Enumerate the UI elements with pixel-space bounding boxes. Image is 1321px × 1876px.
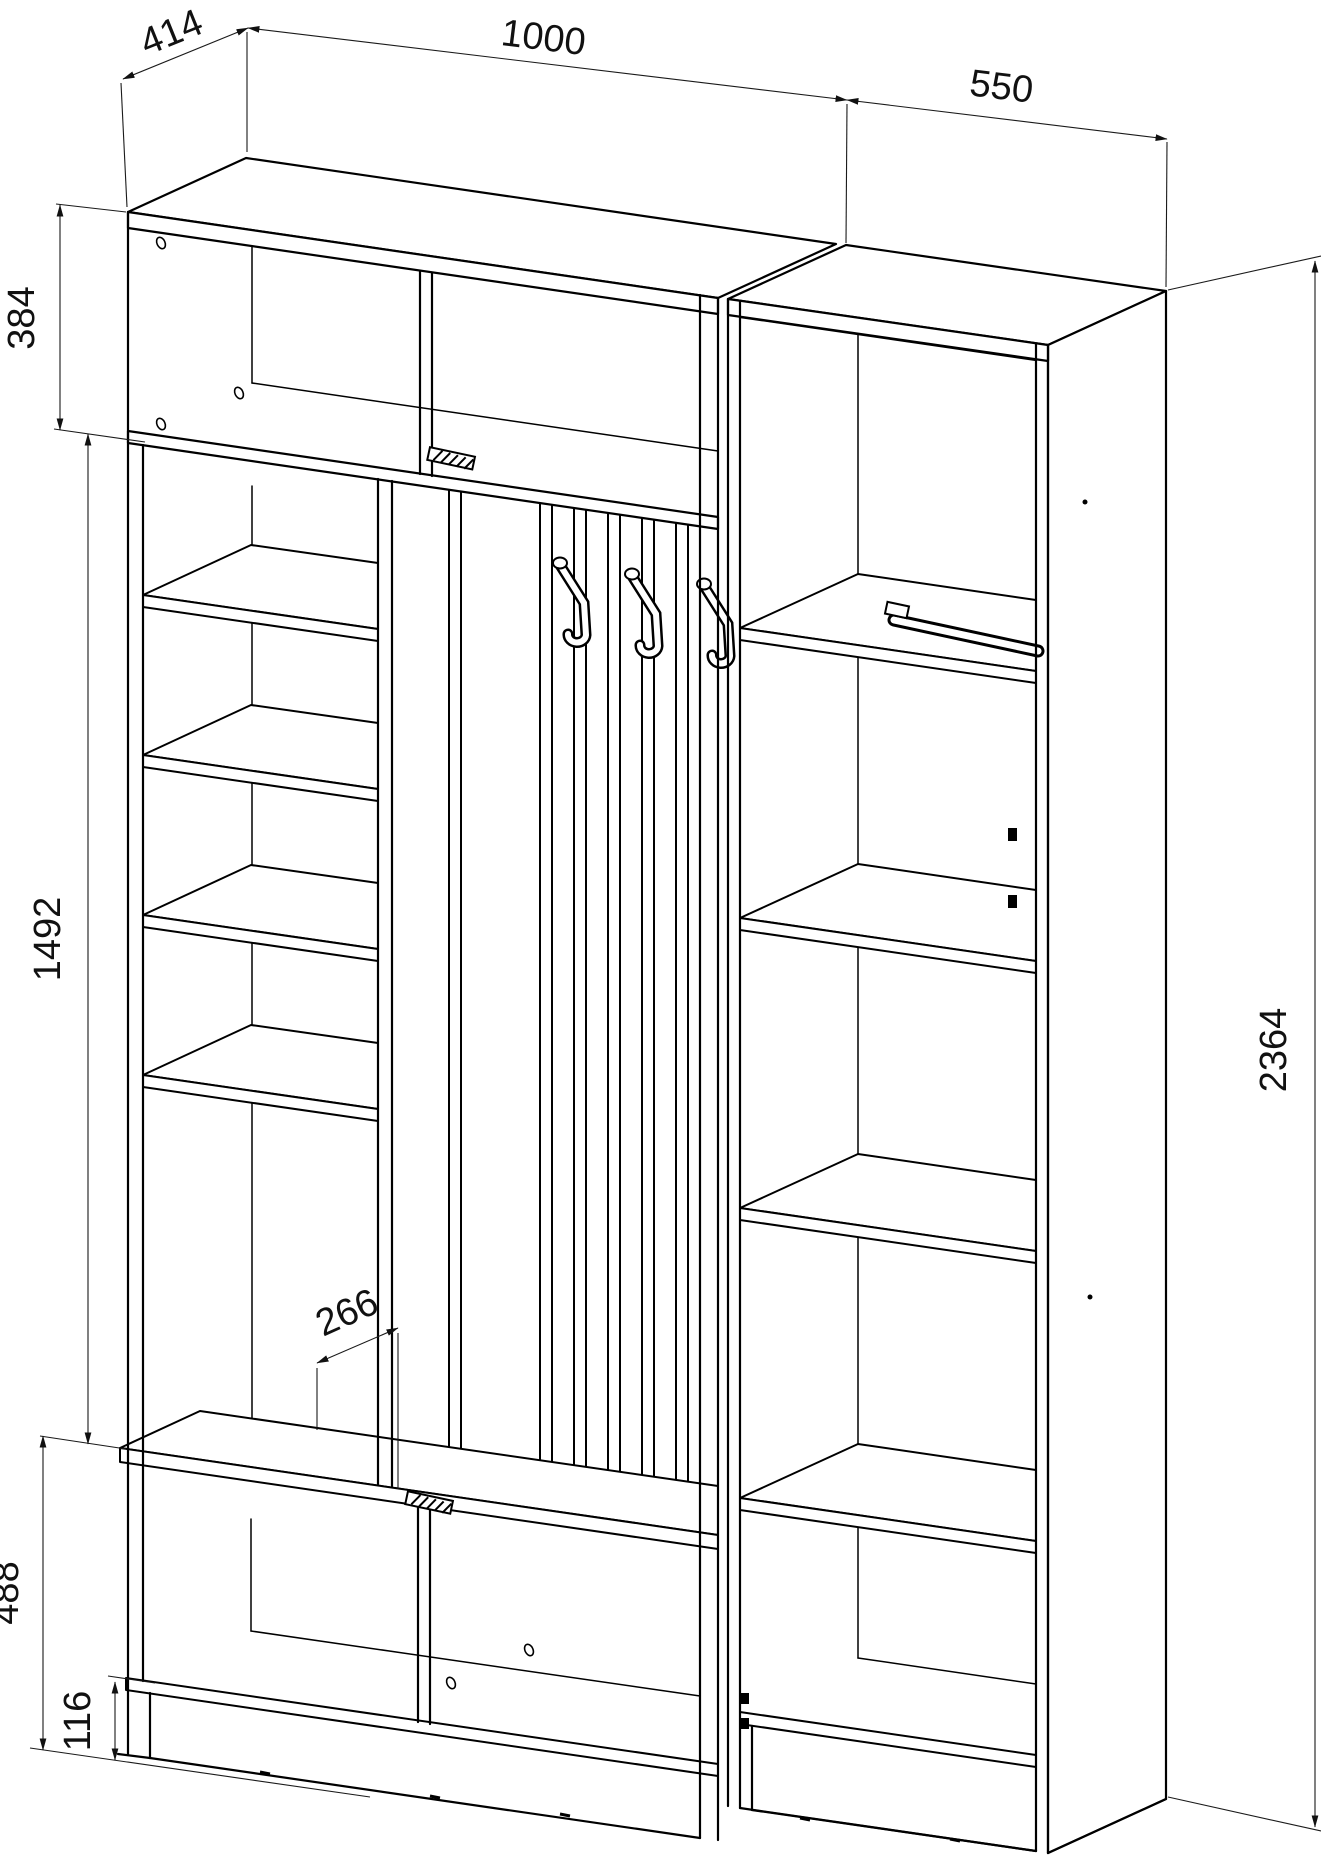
feet-marks	[260, 1772, 960, 1841]
dim-depth: 414	[134, 2, 209, 65]
shelves	[120, 545, 1036, 1776]
dim-total-height: 2364	[1253, 1008, 1295, 1093]
dim-left-width: 1000	[499, 12, 588, 64]
panels	[128, 158, 1166, 1853]
dim-bench-depth: 266	[310, 1281, 385, 1345]
dim-upper-cabinet-height: 384	[1, 286, 43, 349]
upper-cabinet-bottom-strip	[128, 431, 718, 529]
hinge-marks	[741, 500, 1093, 1730]
drawing-canvas: 414 1000 550 384 1492 2364 266 488 116	[0, 0, 1321, 1876]
assembly-drawing: 414 1000 550 384 1492 2364 266 488 116	[0, 0, 1321, 1876]
upper-door-handle	[427, 447, 475, 470]
right-side-face	[1048, 291, 1166, 1853]
dim-right-width: 550	[967, 62, 1035, 111]
dim-open-section-height: 1492	[27, 897, 69, 982]
dim-plinth-height: 116	[57, 1691, 99, 1752]
coat-hook	[553, 558, 586, 643]
coat-hook	[697, 579, 730, 664]
dim-lower-cabinet-height: 488	[0, 1561, 27, 1624]
